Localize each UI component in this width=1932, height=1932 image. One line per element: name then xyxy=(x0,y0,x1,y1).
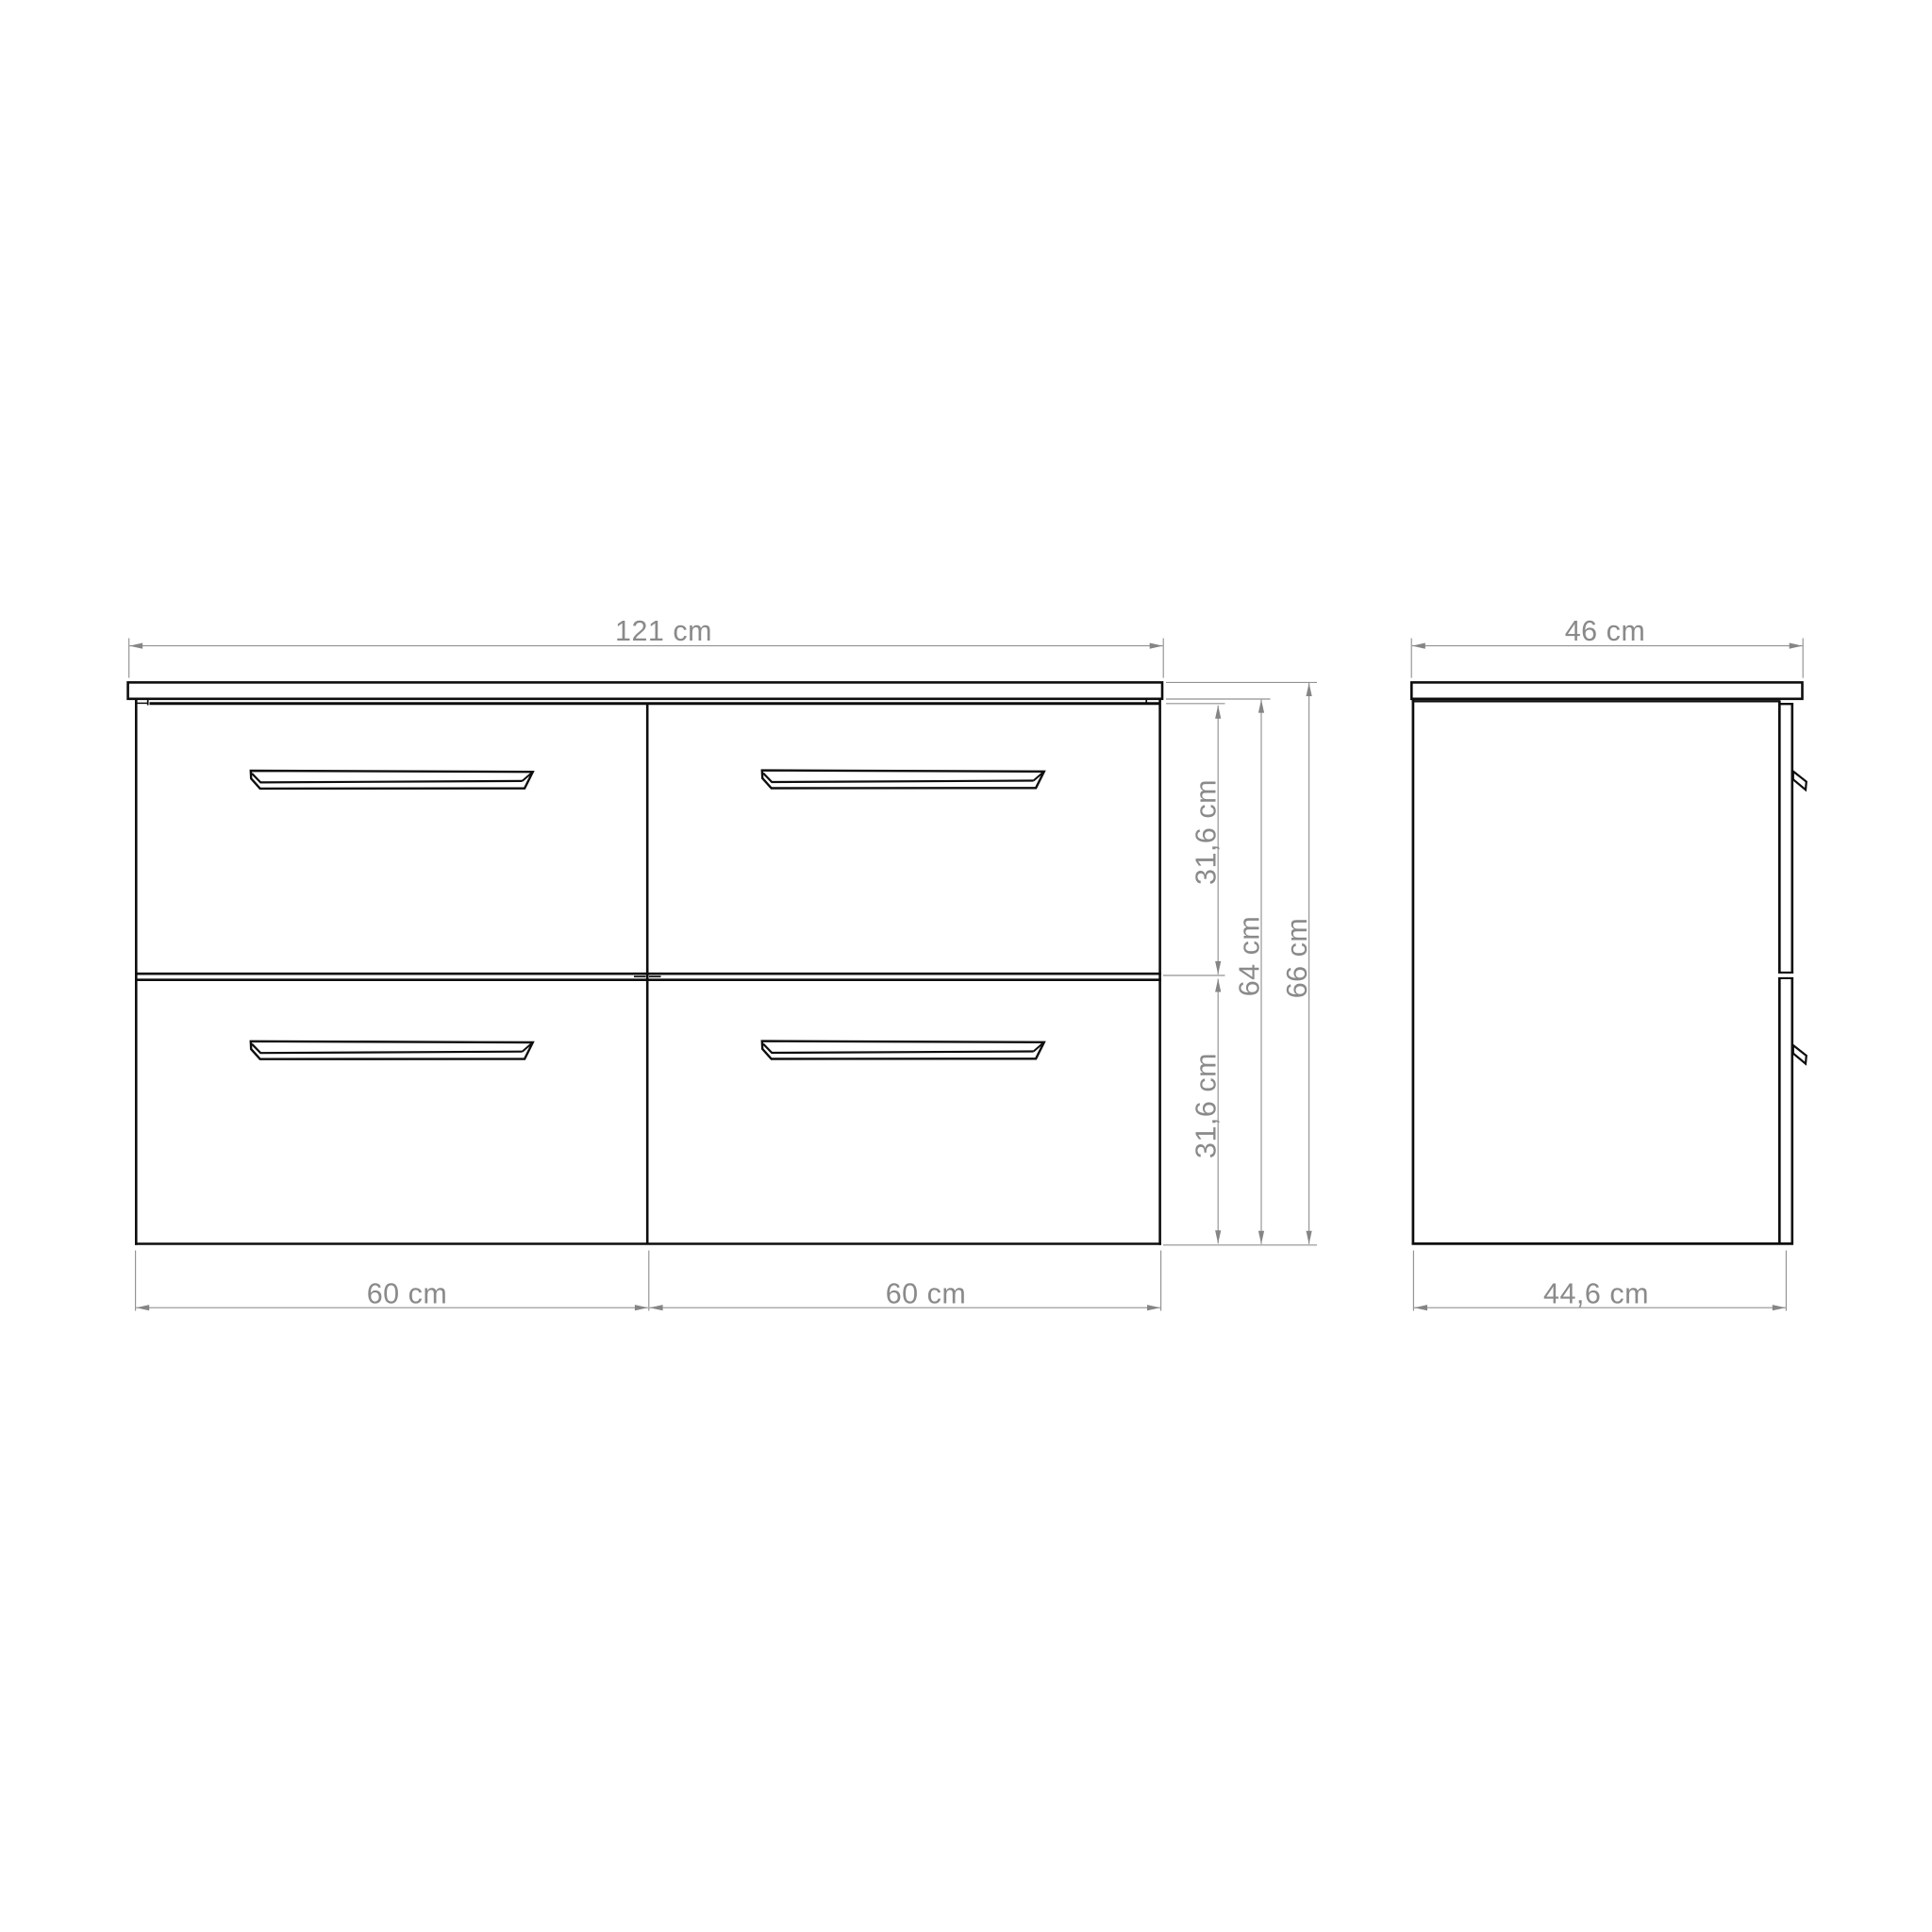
svg-text:44,6 cm: 44,6 cm xyxy=(1543,1277,1649,1309)
svg-text:31,6 cm: 31,6 cm xyxy=(1191,779,1223,885)
svg-text:46 cm: 46 cm xyxy=(1565,615,1646,647)
svg-text:60 cm: 60 cm xyxy=(367,1277,448,1309)
svg-text:31,6 cm: 31,6 cm xyxy=(1191,1053,1223,1158)
svg-text:64 cm: 64 cm xyxy=(1234,916,1266,997)
svg-text:66 cm: 66 cm xyxy=(1281,918,1313,999)
svg-text:60 cm: 60 cm xyxy=(886,1277,967,1309)
svg-text:121 cm: 121 cm xyxy=(615,615,712,647)
